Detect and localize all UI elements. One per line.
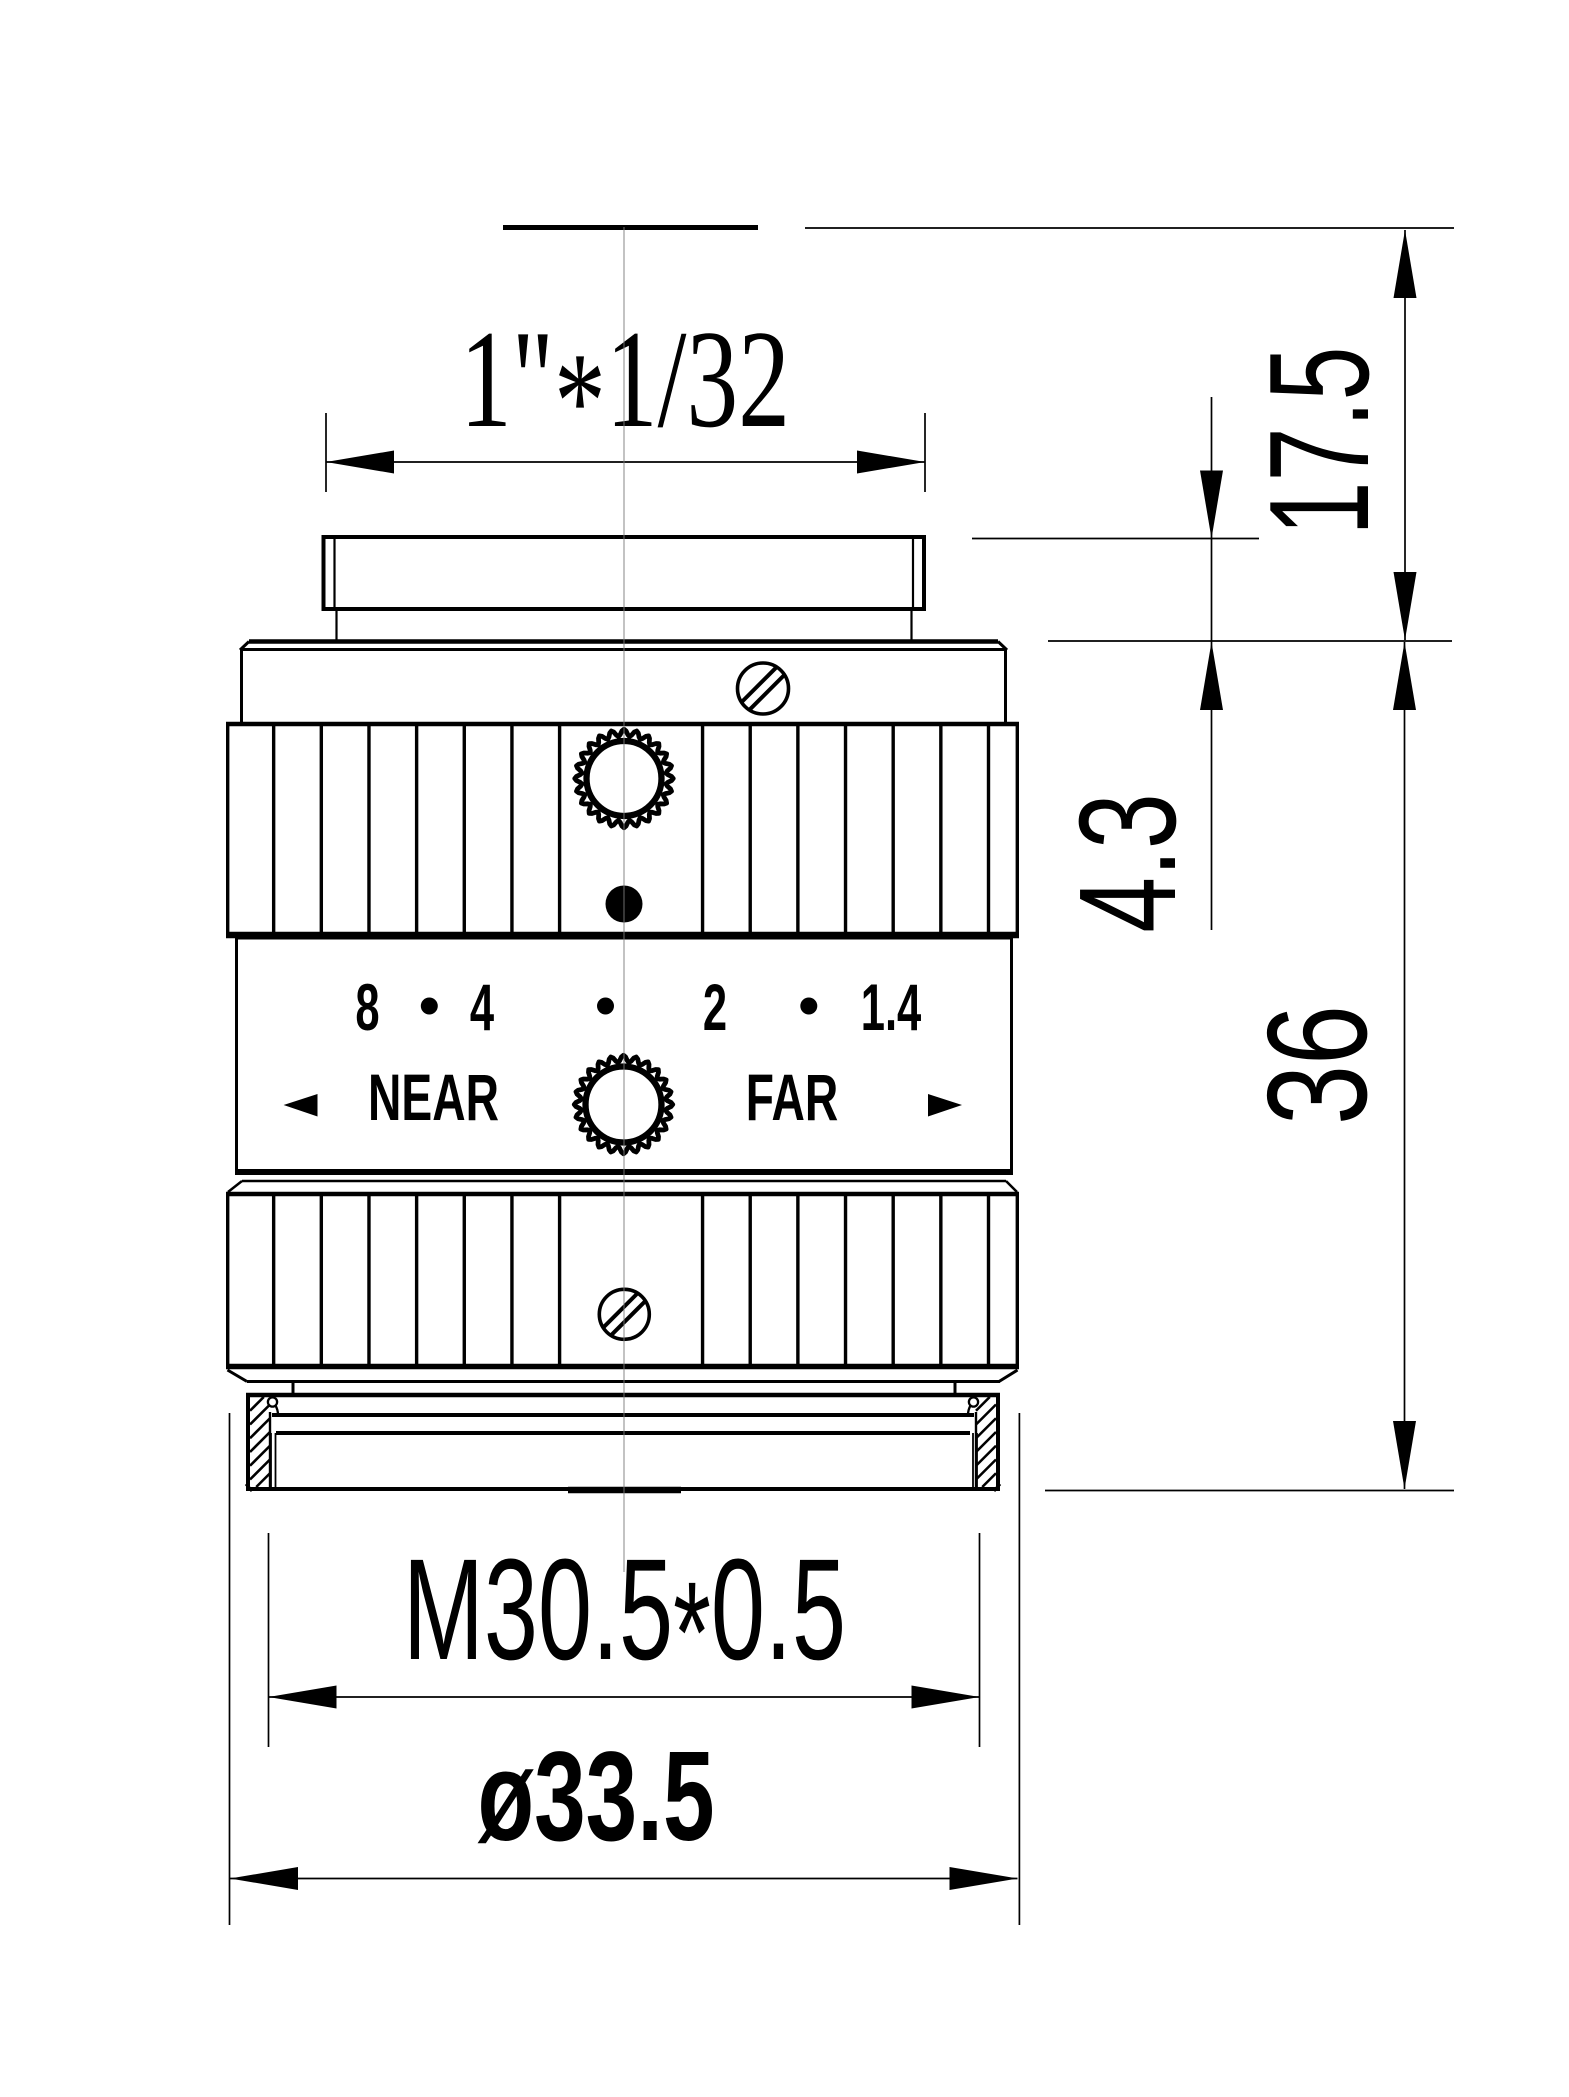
- svg-text:2: 2: [703, 970, 727, 1044]
- svg-text:*: *: [554, 323, 606, 479]
- svg-text:ø33.5: ø33.5: [477, 1725, 714, 1868]
- svg-text:1.4: 1.4: [861, 970, 922, 1044]
- svg-text:4.3: 4.3: [1050, 793, 1204, 932]
- svg-text:1": 1": [460, 301, 554, 457]
- svg-text:0.5: 0.5: [711, 1530, 846, 1691]
- svg-text:M30.5: M30.5: [403, 1530, 673, 1691]
- svg-text:4: 4: [470, 970, 494, 1044]
- svg-text:8: 8: [355, 970, 379, 1044]
- svg-text:FAR: FAR: [746, 1061, 838, 1135]
- svg-text:*: *: [673, 1553, 711, 1714]
- svg-text:1/32: 1/32: [606, 301, 790, 457]
- svg-text:17.5: 17.5: [1240, 346, 1399, 535]
- svg-text:NEAR: NEAR: [368, 1061, 499, 1135]
- svg-text:36: 36: [1238, 1005, 1397, 1125]
